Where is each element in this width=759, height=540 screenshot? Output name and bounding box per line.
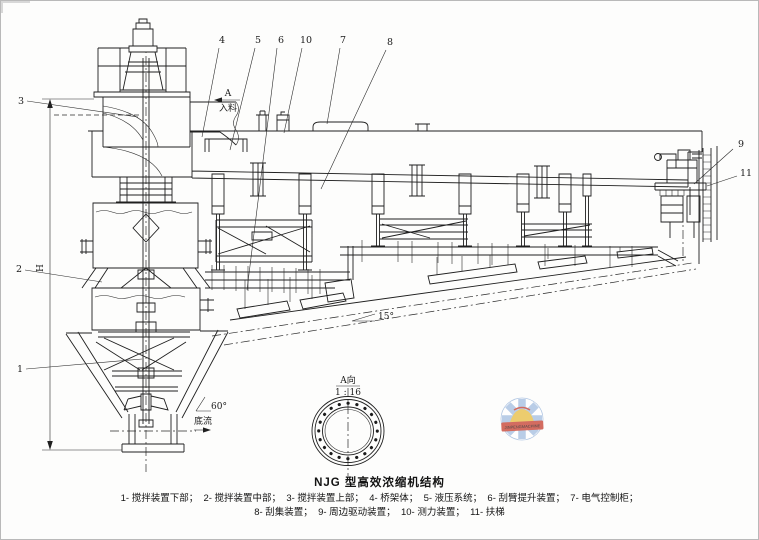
watermark-logo: JINPENGMACHINE [501, 398, 544, 440]
callout-10: 10 [300, 35, 312, 46]
callout-11: 11 [740, 168, 752, 179]
drive-head [94, 19, 190, 424]
drive-wheels [661, 196, 700, 238]
hydraulic-box [205, 139, 247, 152]
callout-8: 8 [387, 37, 393, 48]
bridge-frame [88, 131, 702, 187]
mid-nozzle [200, 298, 214, 312]
callout-2: 2 [16, 264, 22, 275]
bridge-outline [88, 131, 702, 187]
view-a-label: A向 [339, 374, 356, 386]
figure-title: NJG 型高效浓缩机结构 [0, 474, 759, 490]
railing [98, 48, 186, 92]
thickener-diagram: H [0, 0, 759, 540]
callout-3: 3 [18, 96, 24, 107]
figure-caption-line1: 1- 搅拌装置下部； 2- 搅拌装置中部； 3- 搅拌装置上部； 4- 桥架体；… [0, 490, 759, 504]
cone-angle-label: 60° [211, 402, 227, 412]
bolt-posts-right [362, 240, 632, 267]
load-cell-box [277, 112, 289, 131]
hanger-3 [371, 174, 385, 246]
control-cabinet [310, 122, 371, 131]
callout-1: 1 [17, 364, 23, 375]
floor-dashdot-lines [212, 263, 696, 345]
bridge-hanger-fittings [250, 163, 550, 198]
upper-tank [80, 203, 212, 268]
cone-angle-symbol [196, 397, 211, 411]
feed-box-outline [103, 97, 190, 147]
ladder-rails [703, 146, 717, 242]
underflow-label: 底流 [194, 415, 212, 427]
scan-artifact [0, 0, 30, 13]
platform [94, 92, 190, 97]
tank-rim-wall [690, 150, 699, 264]
callout-9: 9 [738, 139, 744, 150]
height-dimension: H [36, 99, 122, 450]
liquid-wave-2 [95, 296, 185, 299]
truss-left [216, 220, 312, 262]
middle-tank [92, 270, 214, 332]
callout-7: 7 [340, 35, 346, 46]
view-a-scale: 1 : 16 [335, 388, 361, 398]
truss-right [522, 224, 592, 237]
view-a-detail: A向 1 : 16 [312, 374, 384, 476]
callout-5: 5 [255, 35, 261, 46]
height-dim-label: H [36, 264, 46, 272]
ladder-rungs [703, 155, 711, 239]
hanger-4 [458, 174, 472, 246]
callout-4: 4 [219, 35, 225, 46]
floor-angle-label: 15° [378, 312, 394, 322]
figure-caption-line2: 8- 刮集装置； 9- 周边驱动装置； 10- 测力装置； 11- 扶梯 [0, 504, 759, 518]
agitator-x-braces [96, 338, 186, 370]
section-letter: A [224, 89, 232, 99]
vent-stub [415, 124, 430, 131]
callout-6: 6 [278, 35, 284, 46]
motor [133, 19, 153, 46]
deck-items [205, 111, 430, 152]
floor-angle-symbol [352, 314, 375, 321]
drive-bolts [660, 190, 690, 196]
feed-label: 入料 [219, 102, 237, 114]
drawing-page: H [0, 0, 759, 540]
scraper-blades [237, 248, 653, 318]
cone-walls [66, 330, 228, 418]
scraper-assembly [205, 219, 678, 309]
liquid-wave [96, 211, 192, 214]
underflow-arrow-head [203, 427, 211, 432]
feed-annotation: A 入料 [214, 89, 240, 114]
floor-line [230, 257, 686, 320]
coupling [129, 46, 157, 52]
truss-middle [380, 219, 468, 239]
peripheral-drive [655, 146, 718, 264]
rake-arm-beams [205, 246, 678, 288]
drive-motor [660, 150, 702, 160]
